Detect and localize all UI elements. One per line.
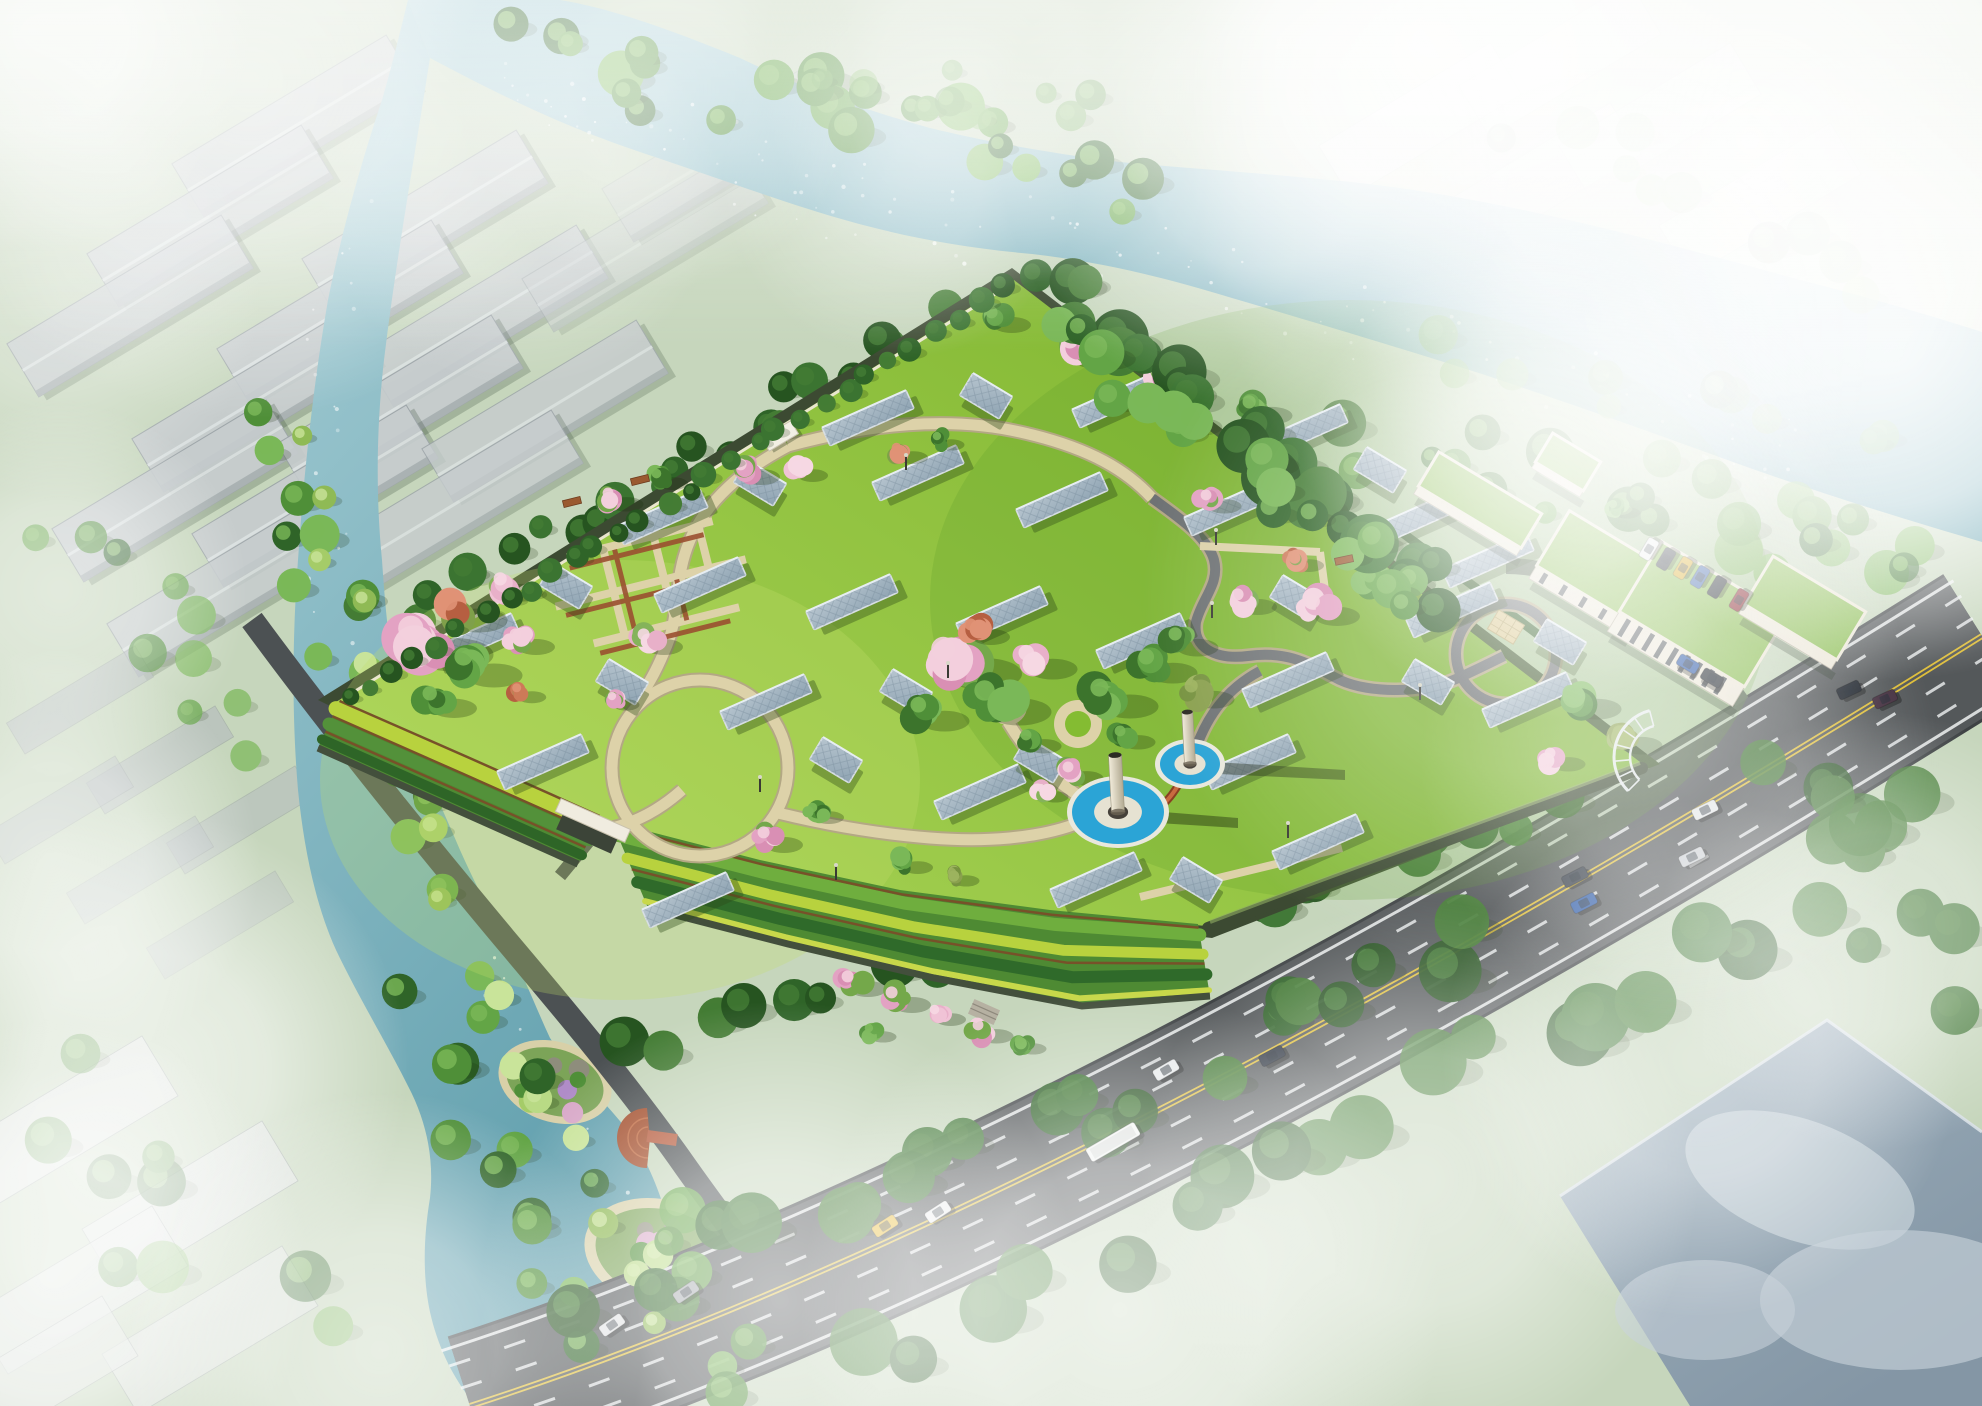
top-haze-veil (0, 0, 1982, 1406)
rendered-scene (0, 0, 1982, 1406)
aerial-park-rendering: Aerial bird's-eye architectural renderin… (0, 0, 1982, 1406)
